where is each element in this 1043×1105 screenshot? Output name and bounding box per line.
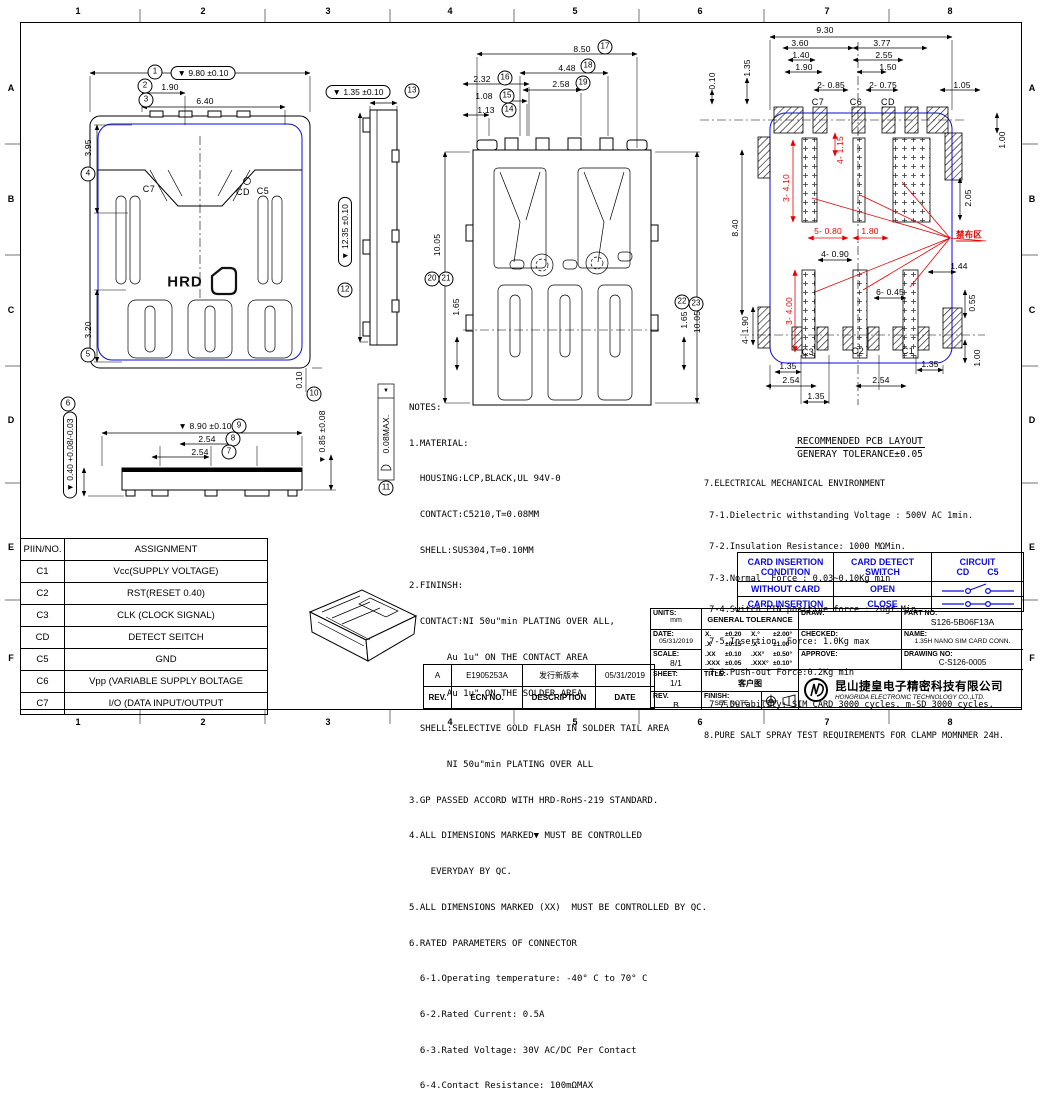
revision-table: AE1905253A发行新版本05/31/2019 REV.ECN NO.DES…	[423, 664, 655, 709]
dim-front-3-20: 3.20	[83, 321, 93, 338]
pad-label-cd: CD	[881, 97, 895, 107]
balloon-10: 10	[307, 387, 322, 402]
dim-front-3-95: 3.95	[83, 139, 93, 156]
note-line: 4.ALL DIMENSIONS MARKED▼ MUST BE CONTROL…	[409, 831, 707, 843]
scale-cell: SCALE:8/1	[651, 649, 701, 669]
draw-cell: DRAW:	[798, 609, 901, 629]
balloon-7: 7	[222, 445, 237, 460]
zone-row-right-f: F	[1029, 653, 1035, 663]
pad-label-c1: C1	[902, 346, 915, 356]
dim-back-2-58: 2.58	[552, 79, 569, 89]
note-line: EVERYDAY BY QC.	[409, 867, 707, 879]
dim-back-4-48: 4.48	[558, 63, 575, 73]
table-row: C2RST(RESET 0.40)	[21, 583, 268, 605]
note-line: 6-3.Rated Voltage: 30V AC/DC Per Contact	[409, 1046, 707, 1058]
balloon-18: 18	[581, 59, 596, 74]
note-line: 6.RATED PARAMETERS OF CONNECTOR	[409, 939, 707, 951]
hongrida-logo-icon	[803, 677, 829, 703]
zone-col-bottom-3: 3	[325, 717, 330, 727]
dim-pcb-6-0-45: 6- 0.45	[876, 287, 904, 297]
table-row: C5GND	[21, 649, 268, 671]
dim-bottom-width: ▼ 8.90 ±0.10	[178, 421, 231, 431]
table-row: C6Vpp (VARIABLE SUPPLY BOLTAGE	[21, 671, 268, 693]
balloon-22: 22	[675, 295, 690, 310]
dim-back-1-65-right: 1.65	[679, 311, 689, 328]
part-no-cell: PART NO:S126-5B06F13A	[901, 609, 1023, 629]
note-line: NI 50u"min PLATING OVER ALL	[409, 760, 707, 772]
dim-pcb-1-35-top: 1.35	[742, 59, 752, 76]
balloon-20: 20	[425, 272, 440, 287]
name-cell: NAME:1.35H NANO SIM CARD CONN.	[901, 629, 1023, 649]
circuit-c5-label: C5	[987, 567, 998, 577]
dim-pcb-3-77: 3.77	[873, 38, 890, 48]
dim-pcb-1-00-top: 1.00	[997, 131, 1007, 148]
zone-row-left-f: F	[8, 653, 14, 663]
dim-pcb-1-05: 1.05	[953, 80, 970, 90]
card-row-without-card: WITHOUT CARD	[738, 581, 833, 596]
drawing-sheet: 1 2 3 4 5 6 7 8 1 2 3 4 5 6 7 8 A B C D …	[0, 0, 1043, 733]
finish-cell: FINISH:SEE NOTE	[701, 691, 761, 709]
table-row: C7I/O (DATA INPUT/OUTPUT	[21, 693, 268, 715]
third-angle-projection-icon	[763, 694, 797, 708]
inspection-triangle-icon: ▼	[383, 388, 389, 394]
dim-pcb-1-35-c: 1.35	[807, 391, 824, 401]
dim-side-flatness: 0.08MAX.	[381, 415, 391, 454]
zone-col-top-1: 1	[75, 6, 80, 16]
notes-block: NOTES: 1.MATERIAL: HOUSING:LCP,BLACK,UL …	[409, 379, 707, 1105]
dim-pcb-9-30: 9.30	[816, 25, 833, 35]
pin-table-header-pin: PIIN/NO.	[21, 539, 65, 561]
balloon-21: 21	[439, 272, 454, 287]
company-name-en: HONGRIDA ELECTRONIC TECHNOLOGY CO.,LTD.	[835, 694, 1003, 701]
table-row: REV.ECN NO.DESCRIPTIONDATE	[424, 687, 655, 709]
dim-pcb-8-40: 8.40	[730, 219, 740, 236]
dim-pcb-4-1-15: 4- 1.15	[835, 136, 845, 164]
hrd-logo-text: HRD	[167, 274, 203, 291]
drawing-no-cell: DRAWING NO:C-S126-0005	[901, 649, 1023, 669]
dim-side-1-35: ▼ 1.35 ±0.10	[326, 85, 391, 99]
front-view-geometry	[90, 73, 322, 392]
balloon-23: 23	[689, 297, 704, 312]
balloon-1: 1	[148, 65, 163, 80]
rev-cell: REV.B	[651, 691, 701, 709]
note-line: 6-1.Operating temperature: -40° C to 70°…	[409, 974, 707, 986]
dim-pcb-1-50: 1.50	[879, 62, 896, 72]
keepout-zone-label: 禁布区	[956, 229, 982, 242]
tolerance-grid: X.±0.20X.°±2.00° .X±0.15.X°±1.00° .XX±0.…	[701, 629, 798, 669]
date-cell: DATE:05/31/2019	[651, 629, 701, 649]
pad-label-c7: C7	[812, 97, 825, 107]
zone-row-right-d: D	[1029, 415, 1036, 425]
dim-side-0-85: ▼ 0.85 ±0.08	[317, 410, 327, 463]
pcb-layout-geometry	[700, 37, 997, 405]
dim-back-1-65-left: 1.65	[451, 298, 461, 315]
dim-pcb-1-80: 1.80	[861, 226, 878, 236]
balloon-11: 11	[379, 481, 394, 496]
table-row: C3CLK (CLOCK SIGNAL)	[21, 605, 268, 627]
zone-row-left-a: A	[8, 83, 15, 93]
zone-col-top-5: 5	[572, 6, 577, 16]
balloon-3: 3	[139, 93, 154, 108]
dim-pcb-2-54-r: 2.54	[872, 375, 889, 385]
zone-row-left-d: D	[8, 415, 15, 425]
dim-front-width: ▼ 9.80 ±0.10	[171, 66, 236, 80]
dim-pcb-5-0-80: 5- 0.80	[814, 226, 842, 236]
balloon-4: 4	[81, 167, 96, 182]
table-row: C1Vcc(SUPPLY VOLTAGE)	[21, 561, 268, 583]
projection-symbols-cell	[761, 691, 798, 709]
dim-back-1-08: 1.08	[475, 91, 492, 101]
tolerance-row: X.±0.20X.°±2.00°	[702, 630, 798, 640]
card-table-header-switch: CARD DETECT SWITCH	[833, 553, 931, 581]
env-note-line: 7-2.Insulation Resistance: 1000 MΩMin.	[704, 542, 1004, 553]
pin-assignment-table: PIIN/NO.ASSIGNMENT C1Vcc(SUPPLY VOLTAGE)…	[20, 538, 268, 715]
balloon-13: 13	[405, 84, 420, 99]
zone-row-right-c: C	[1029, 305, 1036, 315]
pin-table-header-assignment: ASSIGNMENT	[65, 539, 268, 561]
dim-back-1-13: 1.13	[477, 105, 494, 115]
balloon-19: 19	[576, 76, 591, 91]
approve-cell: APPROVE:	[798, 649, 901, 669]
balloon-6: 6	[61, 397, 76, 412]
dim-bottom-0-40: ▼ 0.40 +0.08/-0.03	[63, 412, 77, 499]
tolerance-row: .X±0.15.X°±1.00°	[702, 640, 798, 650]
dim-pcb-2-05: 2.05	[963, 189, 973, 206]
tolerance-row: .XX±0.10.XX°±0.50°	[702, 650, 798, 660]
env-note-line: 7-1.Dielectric withstanding Voltage : 50…	[704, 511, 1004, 522]
tolerance-row: .XXX±0.05.XXX°±0.10°	[702, 659, 798, 669]
zone-col-bottom-1: 1	[75, 717, 80, 727]
card-row-open: OPEN	[833, 581, 931, 596]
dim-pcb-1-90: 1.90	[795, 62, 812, 72]
card-detect-table: CARD INSERTIONCONDITION CARD DETECT SWIT…	[737, 552, 1024, 612]
contact-label-c7: C7	[143, 184, 156, 194]
balloon-16: 16	[498, 71, 513, 86]
dim-pcb-2-54-l: 2.54	[782, 375, 799, 385]
dim-pcb-1-40: 1.40	[792, 50, 809, 60]
zone-col-top-3: 3	[325, 6, 330, 16]
table-row: AE1905253A发行新版本05/31/2019	[424, 665, 655, 687]
zone-col-top-6: 6	[697, 6, 702, 16]
dim-pcb-2-0-85: 2- 0.85	[817, 80, 845, 90]
contact-label-cd: CD	[236, 187, 250, 197]
note-line: 6-4.Contact Resistance: 100mΩMAX	[409, 1081, 707, 1093]
balloon-17: 17	[598, 40, 613, 55]
zone-row-right-b: B	[1029, 194, 1036, 204]
general-tolerance-header: GENERAL TOLERANCE	[701, 609, 798, 629]
dim-pcb-1-35-bl: 1.35	[779, 361, 796, 371]
zone-row-right-a: A	[1029, 83, 1036, 93]
open-switch-symbol	[931, 581, 1023, 596]
dim-front-0-10: 0.10	[294, 371, 304, 388]
sheet-cell: SHEET:1/1	[651, 669, 701, 691]
zone-row-left-b: B	[8, 194, 15, 204]
dim-front-1-90: 1.90	[161, 82, 178, 92]
note-line: 6-2.Rated Current: 0.5A	[409, 1010, 707, 1022]
note-line: HOUSING:LCP,BLACK,UL 94V-0	[409, 474, 707, 486]
zone-col-top-4: 4	[447, 6, 452, 16]
zone-row-left-e: E	[8, 542, 14, 552]
dim-pcb-4-0-90: 4- 0.90	[821, 249, 849, 259]
dim-bottom-2-54-a: 2.54	[198, 434, 215, 444]
balloon-15: 15	[500, 89, 515, 104]
dim-pcb-0-10: 0.10	[707, 72, 717, 89]
dim-back-10-05-right: 10.05	[692, 311, 702, 333]
checked-cell: CHECKED:	[798, 629, 901, 649]
dim-pcb-4-1-90: 4- 1.90	[740, 316, 750, 344]
balloon-12: 12	[338, 283, 353, 298]
dim-back-8-50: 8.50	[573, 44, 590, 54]
balloon-5: 5	[81, 348, 96, 363]
env-note-line: 7.ELECTRICAL MECHANICAL ENVIRONMENT	[704, 479, 1004, 490]
units-cell: UNITS:mm	[651, 609, 701, 629]
zone-col-top-8: 8	[947, 6, 952, 16]
note-line: SHELL:SUS304,T=0.10MM	[409, 546, 707, 558]
bottom-view-geometry	[84, 433, 302, 496]
title-block: UNITS:mm DATE:05/31/2019 SCALE:8/1 SHEET…	[650, 608, 1022, 708]
balloon-14: 14	[502, 103, 517, 118]
dim-pcb-1-35-br: 1.35	[921, 359, 938, 369]
card-table-header-condition: CARD INSERTIONCONDITION	[738, 553, 833, 581]
contact-label-c5: C5	[257, 186, 270, 196]
note-line: NOTES:	[409, 403, 707, 415]
company-name-cn: 昆山捷皇电子精密科技有限公司	[835, 678, 1003, 694]
dim-back-10-05-left: 10.05	[432, 234, 442, 256]
note-line: 5.ALL DIMENSIONS MARKED (XX) MUST BE CON…	[409, 903, 707, 915]
dim-pcb-2-0-75: 2- 0.75	[869, 80, 897, 90]
pad-label-c6: C6	[850, 97, 863, 107]
dim-pcb-3-4-00: 3- 4.00	[784, 297, 794, 325]
dim-side-12-35: ▼ 12.35 ±0.10	[338, 197, 352, 267]
dim-pcb-3-4-10: 3- 4.10	[781, 174, 791, 202]
dim-pcb-0-55: 0.55	[967, 294, 977, 311]
note-line: 1.MATERIAL:	[409, 439, 707, 451]
balloon-2: 2	[138, 79, 153, 94]
dim-pcb-1-44: 1.44	[950, 261, 967, 271]
note-line: 2.FININSH:	[409, 581, 707, 593]
card-table-header-circuit: CIRCUIT CDC5	[931, 553, 1023, 581]
note-line: 3.GP PASSED ACCORD WITH HRD-RoHS-219 STA…	[409, 796, 707, 808]
pad-label-c2: C2	[852, 346, 865, 356]
pcb-layout-title-line1: RECOMMENDED PCB LAYOUT	[795, 436, 925, 448]
dim-bottom-2-54-b: 2.54	[191, 447, 208, 457]
zone-col-top-2: 2	[200, 6, 205, 16]
note-line: CONTACT:C5210,T=0.08MM	[409, 510, 707, 522]
pad-label-c3: C3	[802, 347, 815, 357]
note-line: SHELL:SELECTIVE GOLD FLASH IN SOLDER TAI…	[409, 724, 707, 736]
dim-pcb-1-00-bottom: 1.00	[972, 349, 982, 366]
title-cell: TITLE:客户图	[701, 669, 798, 691]
dim-pcb-3-60: 3.60	[791, 38, 808, 48]
circuit-cd-label: CD	[957, 567, 970, 577]
company-cell: 昆山捷皇电子精密科技有限公司 HONGRIDA ELECTRONIC TECHN…	[798, 669, 1023, 709]
dim-back-2-32: 2.32	[473, 74, 490, 84]
isometric-view-geometry	[310, 590, 416, 661]
dim-front-6-40: 6.40	[196, 96, 213, 106]
dim-pcb-2-55: 2.55	[875, 50, 892, 60]
zone-col-bottom-2: 2	[200, 717, 205, 727]
zone-col-top-7: 7	[824, 6, 829, 16]
table-row: CDDETECT SEITCH	[21, 627, 268, 649]
zone-row-left-c: C	[8, 305, 15, 315]
zone-row-right-e: E	[1029, 542, 1035, 552]
